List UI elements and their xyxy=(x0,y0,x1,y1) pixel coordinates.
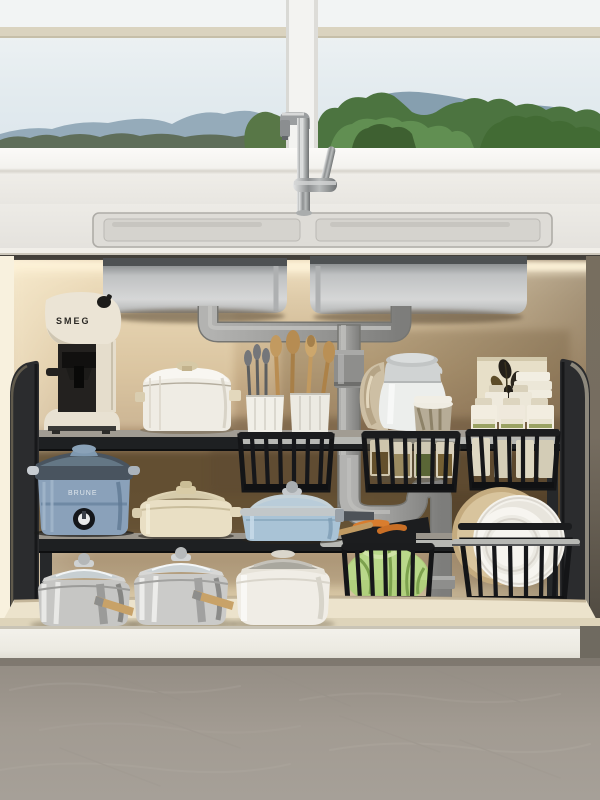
svg-text:SMEG: SMEG xyxy=(56,316,91,326)
svg-text:BRUNE: BRUNE xyxy=(68,490,98,497)
